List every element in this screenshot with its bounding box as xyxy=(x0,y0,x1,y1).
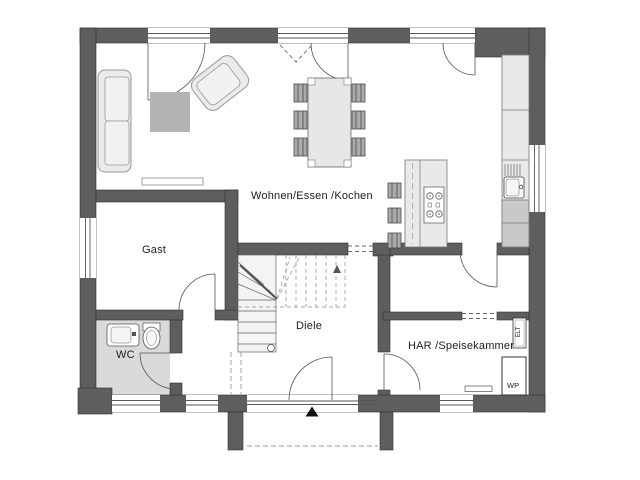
sideboard xyxy=(142,178,203,185)
room-label-wohnen: Wohnen/Essen /Kochen xyxy=(251,190,373,202)
dining-table xyxy=(308,78,351,167)
stair-direction-arrow xyxy=(333,265,341,273)
vent-grille xyxy=(465,386,492,392)
floor-plan: Wohnen/Essen /Kochen Gast WC Diele HAR /… xyxy=(0,0,640,480)
kitchen-terrace-door xyxy=(443,43,475,75)
room-label-har: HAR /Speisekammer xyxy=(408,340,514,352)
pantry-door xyxy=(460,250,497,287)
porch-column-right xyxy=(380,412,393,450)
sofa xyxy=(98,70,131,172)
toilet xyxy=(143,323,160,349)
room-label-gast: Gast xyxy=(142,244,166,256)
dashed-wall-lines xyxy=(348,246,497,319)
wc-sink xyxy=(107,324,139,346)
gast-door xyxy=(179,274,215,310)
staircase xyxy=(238,255,345,352)
bar-stools xyxy=(388,183,401,248)
cooktop xyxy=(424,187,444,223)
coffee-table xyxy=(150,92,190,132)
room-label-wc: WC xyxy=(116,349,135,361)
entrance-door xyxy=(289,357,332,400)
terrace-door-2 xyxy=(311,43,348,80)
tilt-symbol xyxy=(280,45,312,62)
floor-plan-drawing xyxy=(0,0,640,480)
equipment-label-wp: WP xyxy=(507,381,519,390)
armchair xyxy=(188,52,252,114)
porch-column-left xyxy=(228,412,243,450)
kitchen-counter xyxy=(502,55,529,247)
equipment-label-elt: ELT xyxy=(516,321,522,343)
har-door xyxy=(384,354,420,390)
stair-newel xyxy=(268,345,275,352)
kitchen-island xyxy=(405,160,447,247)
room-label-diele: Diele xyxy=(296,320,322,332)
